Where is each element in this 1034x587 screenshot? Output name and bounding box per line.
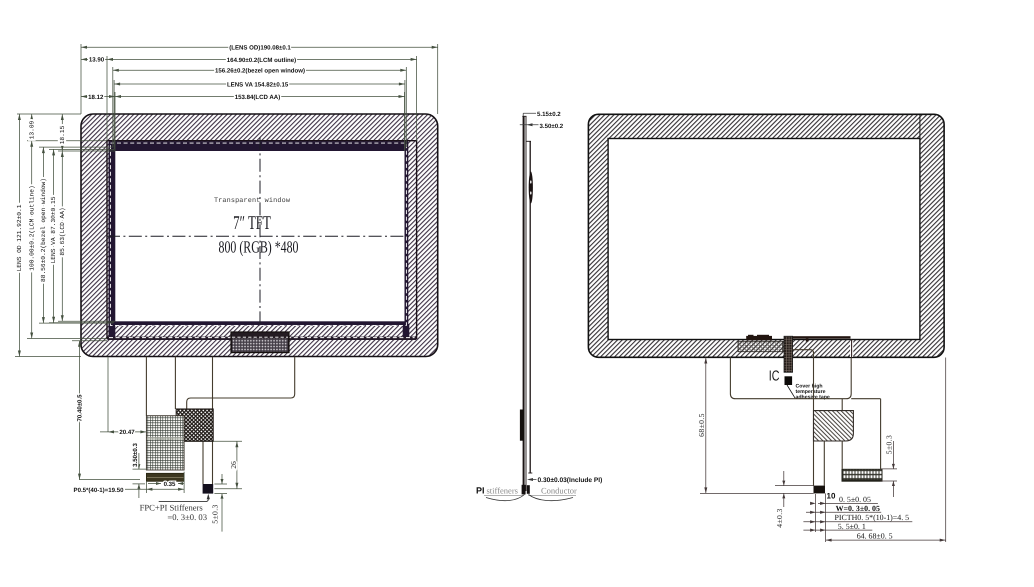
svg-text:3.50±0.2: 3.50±0.2 xyxy=(540,123,564,130)
svg-text:20.47: 20.47 xyxy=(119,429,135,436)
svg-text:IC: IC xyxy=(769,369,780,385)
svg-text:88.56±0.2(bezel open window): 88.56±0.2(bezel open window) xyxy=(40,178,47,282)
svg-text:153.84(LCD AA): 153.84(LCD AA) xyxy=(235,94,281,101)
svg-text:4±0.3: 4±0.3 xyxy=(775,508,784,527)
svg-text:156.26±0.2(bezel open window): 156.26±0.2(bezel open window) xyxy=(215,68,305,75)
svg-text:0.30±0.03(Include PI): 0.30±0.03(Include PI) xyxy=(538,477,603,484)
svg-text:=0. 3±0. 03: =0. 3±0. 03 xyxy=(167,512,207,522)
svg-text:64. 68±0. 5: 64. 68±0. 5 xyxy=(857,531,893,540)
svg-text:W=0. 3±0. 05: W=0. 3±0. 05 xyxy=(836,504,880,513)
svg-text:(LENS OD)190.08±0.1: (LENS OD)190.08±0.1 xyxy=(229,45,291,52)
svg-text:LENS VA 154.82±0.15: LENS VA 154.82±0.15 xyxy=(227,81,289,88)
svg-text:5.15±0.2: 5.15±0.2 xyxy=(537,111,561,118)
svg-text:LENS OD 121.92±0.1: LENS OD 121.92±0.1 xyxy=(16,204,23,271)
svg-text:164.90±0.2(LCM outline): 164.90±0.2(LCM outline) xyxy=(227,57,296,64)
svg-text:68±0.5: 68±0.5 xyxy=(697,413,706,437)
svg-text:13.90: 13.90 xyxy=(89,57,105,64)
svg-text:0. 5±0. 05: 0. 5±0. 05 xyxy=(839,495,871,504)
svg-text:0.35: 0.35 xyxy=(164,481,176,488)
svg-text:Conductor: Conductor xyxy=(541,486,577,496)
svg-text:7″ TFT: 7″ TFT xyxy=(233,213,271,234)
svg-text:PI: PI xyxy=(476,486,485,496)
svg-text:adhesive tape: adhesive tape xyxy=(796,395,830,401)
svg-text:FPC+PI Stiffeners: FPC+PI Stiffeners xyxy=(140,503,204,513)
svg-text:85.63(LCD AA): 85.63(LCD AA) xyxy=(59,207,66,255)
svg-text:800 (RGB) *480: 800 (RGB) *480 xyxy=(219,238,299,257)
svg-text:stiffeners: stiffeners xyxy=(487,486,518,496)
svg-text:5. 5±0. 1: 5. 5±0. 1 xyxy=(838,522,866,531)
svg-text:26: 26 xyxy=(229,461,238,469)
svg-text:100.00±0.2(LCM outline): 100.00±0.2(LCM outline) xyxy=(29,185,36,270)
svg-text:3.50±0.3: 3.50±0.3 xyxy=(132,443,139,467)
svg-text:13.09: 13.09 xyxy=(29,120,36,139)
svg-text:LENS VA 87.30±0.15: LENS VA 87.30±0.15 xyxy=(50,196,57,263)
svg-text:18.12: 18.12 xyxy=(88,94,104,101)
svg-text:18.15: 18.15 xyxy=(59,125,66,144)
svg-text:5±0.3: 5±0.3 xyxy=(884,435,893,454)
svg-text:Transparent window: Transparent window xyxy=(214,197,291,205)
svg-text:xxxxx xxx: xxxxx xxx xyxy=(156,437,173,441)
svg-text:10: 10 xyxy=(827,492,836,501)
svg-text:P0.5*(40-1)=19.50: P0.5*(40-1)=19.50 xyxy=(74,487,125,494)
svg-text:70.40±0.5: 70.40±0.5 xyxy=(77,394,84,422)
svg-text:5±0.3: 5±0.3 xyxy=(211,504,220,523)
